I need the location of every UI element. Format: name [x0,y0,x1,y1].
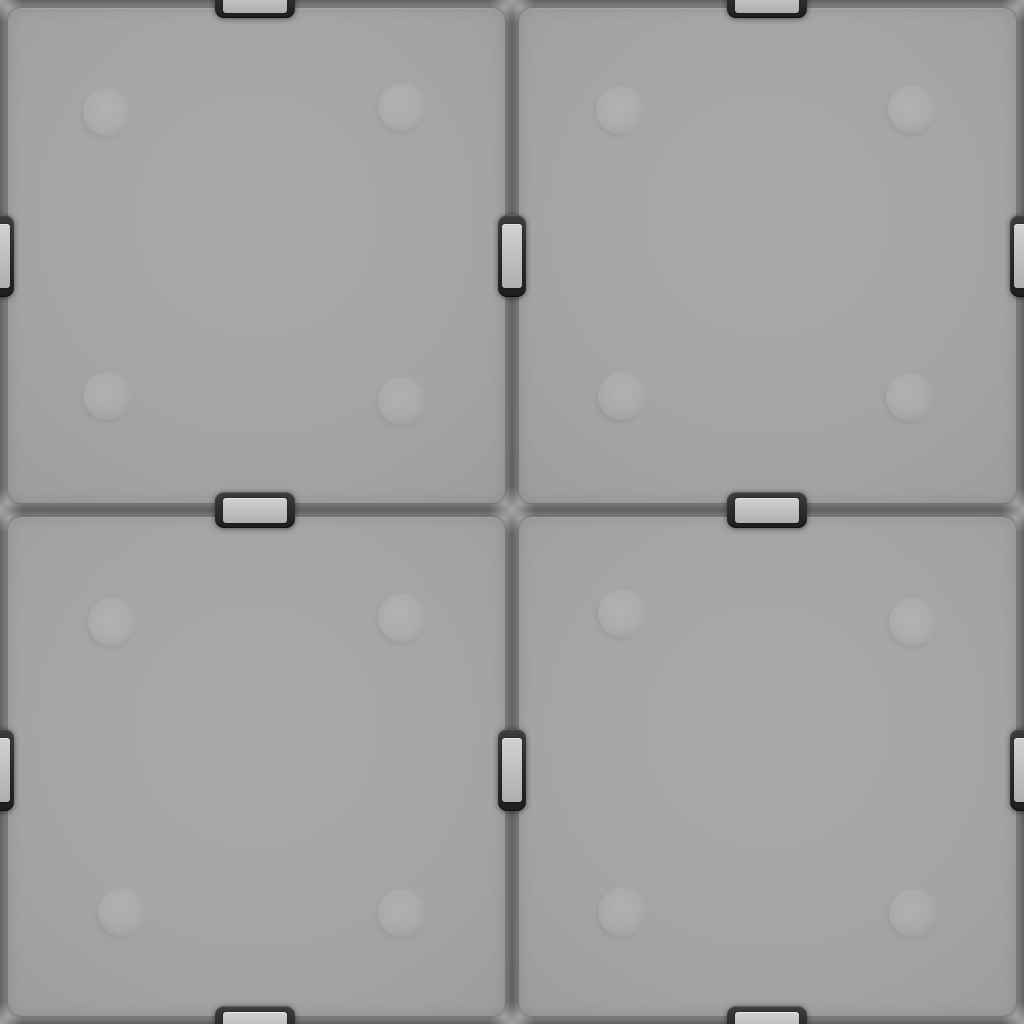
clip-plate [735,498,799,523]
clip-plate [223,0,287,13]
rivet [98,888,146,936]
clip-fastener-vertical [1010,215,1024,297]
rivet [598,372,646,420]
rivet [83,372,131,420]
clip-fastener-horizontal [727,0,807,18]
clip-plate [502,224,522,288]
clip-fastener-horizontal [727,1006,807,1024]
panel-bottom-right [519,517,1016,1016]
clip-plate [502,738,522,802]
clip-plate [1014,224,1024,288]
rivet [888,85,936,133]
panel-top-right [519,8,1016,503]
rivet [88,598,136,646]
clip-plate [0,224,10,288]
clip-fastener-horizontal [215,492,295,528]
panel-top-left [8,8,505,503]
clip-fastener-horizontal [215,1006,295,1024]
rivet [378,594,426,642]
clip-fastener-vertical [0,729,14,811]
rivet [889,889,937,937]
clip-fastener-vertical [498,729,526,811]
clip-fastener-vertical [0,215,14,297]
clip-fastener-vertical [498,215,526,297]
clip-fastener-horizontal [215,0,295,18]
rivet [83,88,131,136]
clip-plate [735,1012,799,1024]
rivet [378,83,426,131]
clip-plate [223,498,287,523]
clip-fastener-vertical [1010,729,1024,811]
clip-plate [0,738,10,802]
rivet [598,589,646,637]
rivet [598,888,646,936]
rivet [886,373,934,421]
panel-texture-scene [0,0,1024,1024]
clip-fastener-horizontal [727,492,807,528]
rivet [889,598,937,646]
rivet [378,377,426,425]
rivet [378,889,426,937]
clip-plate [1014,738,1024,802]
rivet [596,86,644,134]
clip-plate [735,0,799,13]
clip-plate [223,1012,287,1024]
panel-bottom-left [8,517,505,1016]
